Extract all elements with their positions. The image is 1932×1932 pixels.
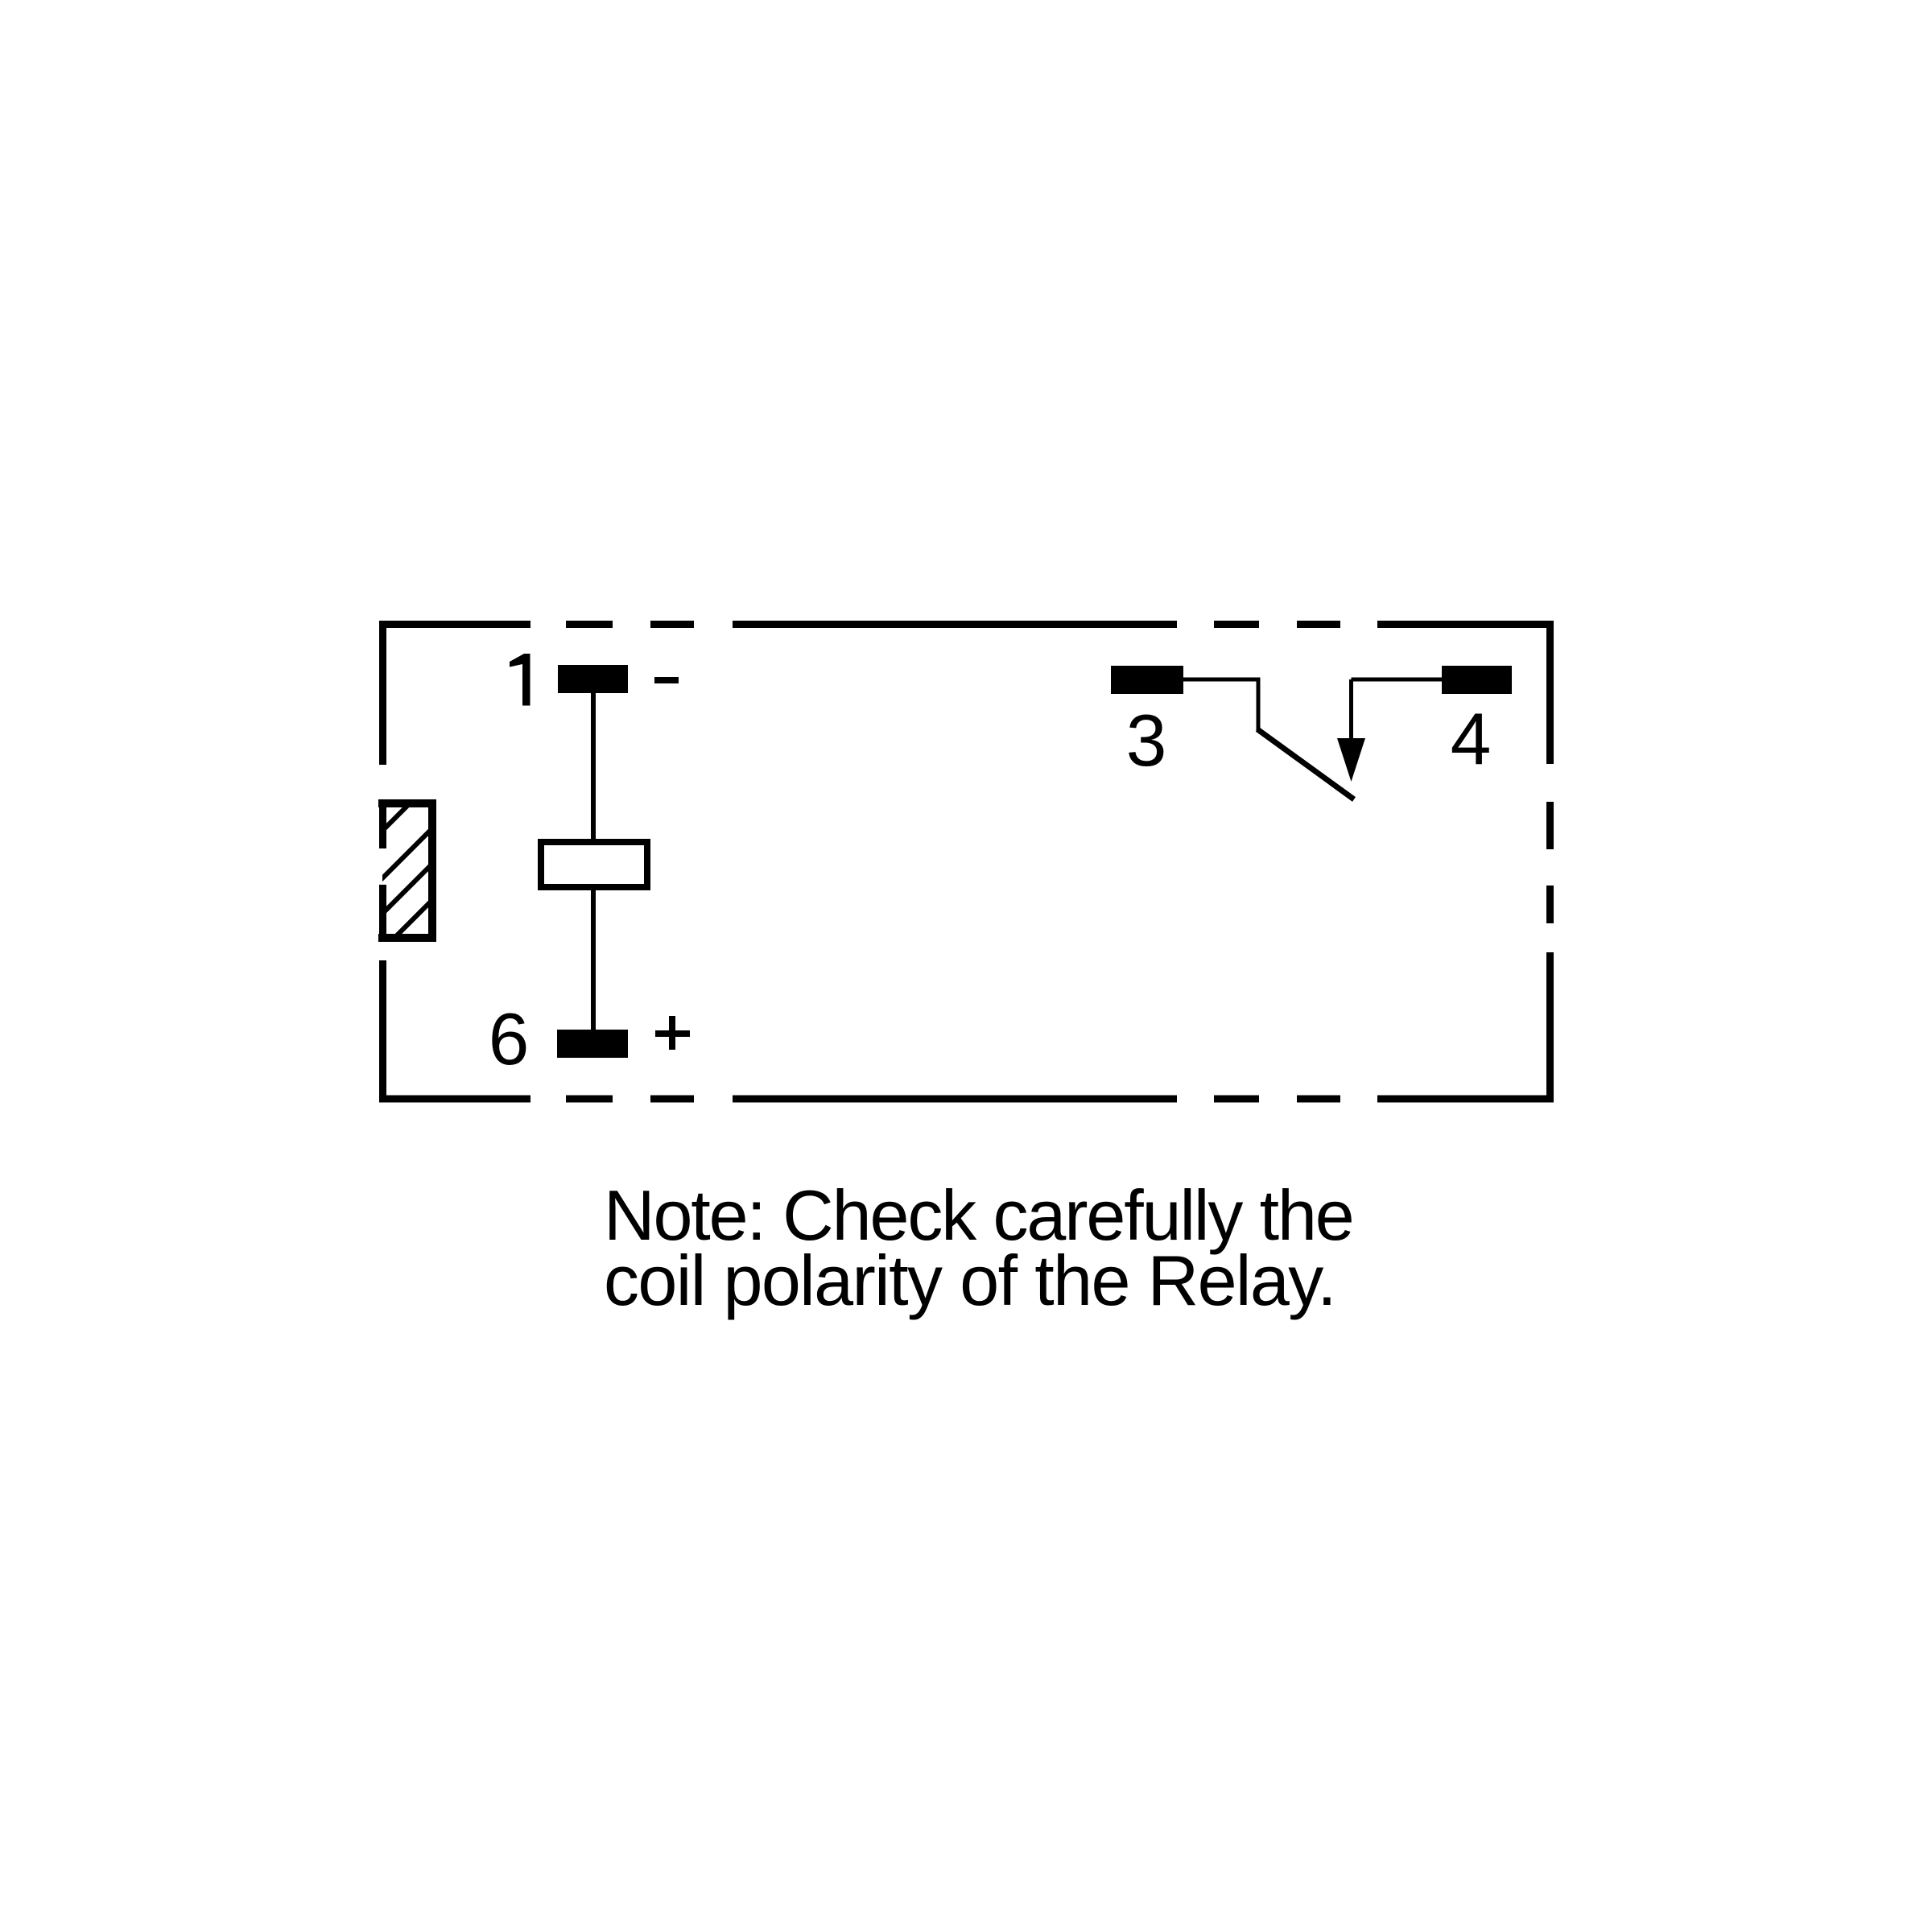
- svg-text:3: 3: [1126, 700, 1167, 782]
- svg-text:4: 4: [1451, 699, 1492, 780]
- svg-text:coil polarity of the Relay.: coil polarity of the Relay.: [604, 1241, 1335, 1320]
- svg-text:6: 6: [489, 999, 530, 1080]
